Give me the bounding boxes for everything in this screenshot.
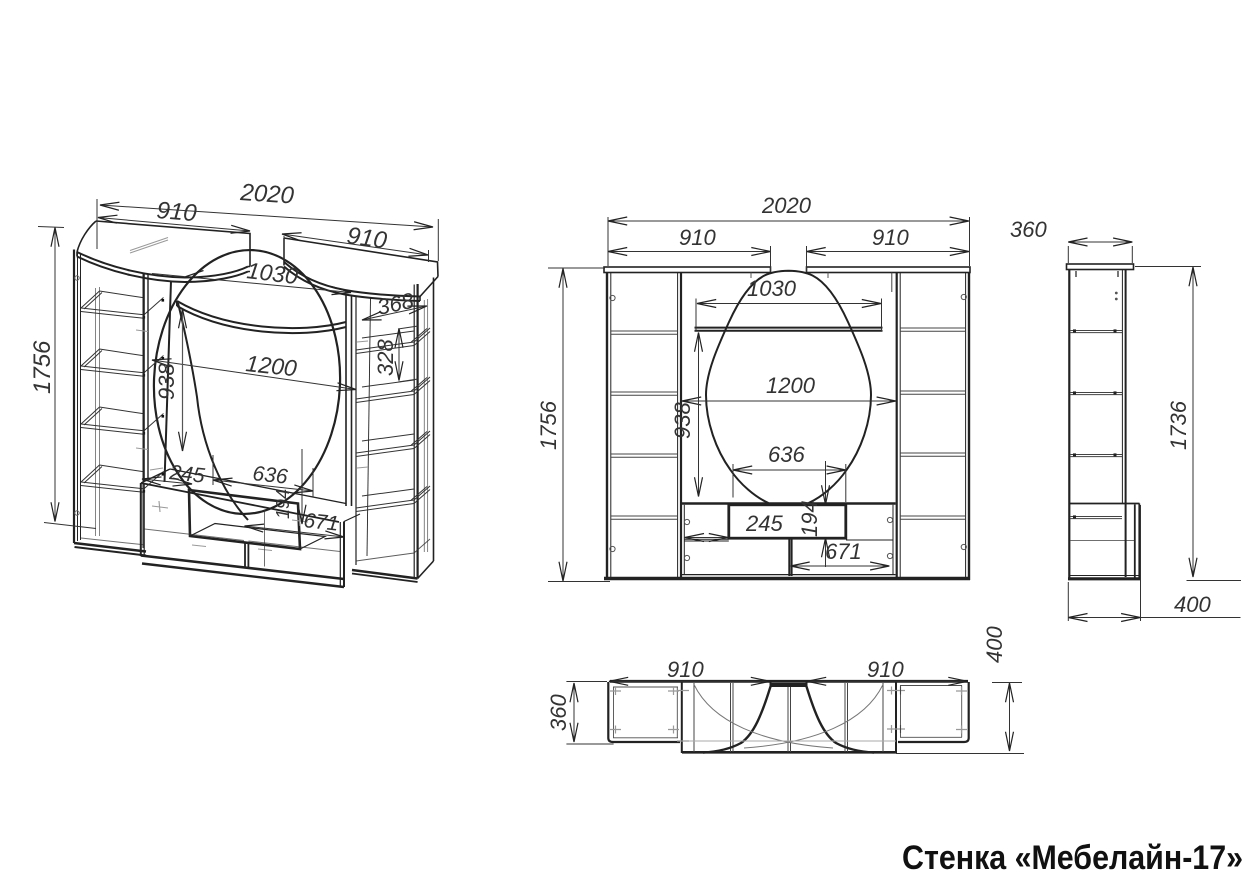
svg-text:360: 360 (1010, 217, 1047, 242)
svg-text:368: 368 (375, 288, 417, 320)
svg-text:671: 671 (825, 539, 862, 564)
svg-text:2020: 2020 (761, 193, 812, 218)
svg-text:1030: 1030 (747, 276, 797, 301)
svg-text:1756: 1756 (29, 340, 56, 394)
svg-text:910: 910 (667, 657, 704, 682)
svg-text:1200: 1200 (766, 373, 816, 398)
svg-text:938: 938 (154, 363, 179, 400)
svg-text:636: 636 (768, 442, 805, 467)
svg-text:910: 910 (156, 197, 199, 227)
svg-text:910: 910 (679, 225, 716, 250)
svg-text:910: 910 (345, 222, 389, 254)
svg-text:938: 938 (670, 402, 695, 439)
svg-text:400: 400 (1174, 592, 1211, 617)
svg-text:1200: 1200 (244, 350, 298, 381)
svg-text:194: 194 (273, 489, 293, 519)
svg-text:245: 245 (167, 461, 206, 488)
svg-text:1756: 1756 (536, 400, 561, 450)
svg-text:1736: 1736 (1166, 400, 1191, 450)
svg-text:2020: 2020 (239, 179, 296, 210)
svg-text:671: 671 (302, 509, 339, 536)
svg-text:360: 360 (546, 694, 571, 731)
svg-text:910: 910 (872, 225, 909, 250)
svg-text:245: 245 (745, 511, 783, 536)
svg-text:328: 328 (373, 339, 398, 376)
svg-text:Стенка «Мебелайн-17»: Стенка «Мебелайн-17» (902, 839, 1243, 877)
svg-text:1030: 1030 (245, 257, 299, 289)
svg-text:400: 400 (982, 626, 1007, 663)
svg-text:636: 636 (251, 462, 289, 489)
svg-text:910: 910 (867, 657, 904, 682)
svg-text:194: 194 (797, 500, 822, 537)
